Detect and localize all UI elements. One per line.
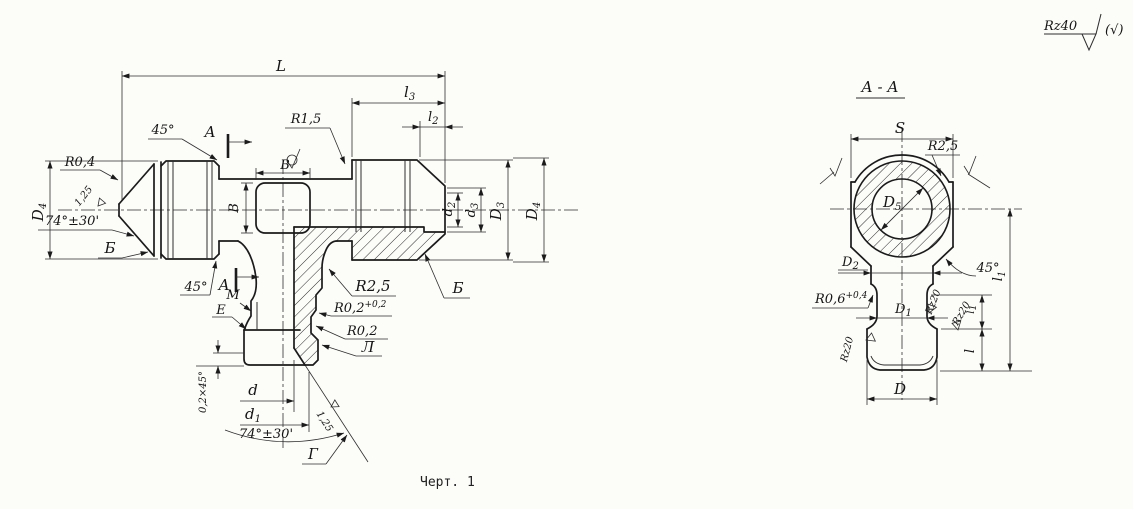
roughness-flag-icon — [95, 198, 106, 209]
label-dim-D5: D5 — [882, 193, 901, 213]
label-dim-D: D — [893, 380, 906, 398]
chamfer-45-bottom-note: 45° — [180, 261, 216, 295]
section-view: А - А D5 S — [812, 78, 1032, 405]
radius-small-note: R0,2 — [316, 324, 388, 339]
label-dim-D3: D3 — [487, 202, 507, 221]
label-radius-tip: R0,4 — [64, 155, 95, 170]
label-dim-d1: d1 — [245, 405, 261, 425]
label-radius-neck: R0,6+0,4 — [814, 291, 868, 307]
label-surf-M: М — [225, 288, 240, 303]
label-surf-B-left: Б — [103, 239, 115, 257]
radius-groove-note: R0,2+0,2 — [319, 300, 392, 316]
surf-B-right-note: Б — [425, 254, 470, 298]
label-dim-L: L — [275, 57, 286, 75]
label-radius-thread: R1,5 — [290, 112, 321, 127]
rough-thread-left-note: Rz20 — [839, 333, 876, 364]
radius-neck-note: R0,6+0,4 — [812, 291, 873, 308]
check-symbol-left — [820, 158, 842, 184]
label-dim-l2: l2 — [428, 110, 439, 127]
roughness-symbol-icon — [1082, 34, 1096, 50]
label-dim-D1: D1 — [894, 302, 912, 319]
radius-branch-note: R2,5 — [329, 269, 396, 296]
label-radius-branch: R2,5 — [354, 277, 390, 295]
surface-note: Rz40 (√) — [1043, 14, 1123, 50]
drawing-sheet: L l3 l2 D4 45° А — [0, 0, 1133, 509]
dim-B-width: В — [256, 158, 310, 180]
dim-B-height: В — [227, 183, 253, 233]
label-rough-bottom: 1,25 — [314, 409, 335, 434]
surface-note-rest: (√) — [1105, 23, 1123, 38]
label-dim-l: l — [963, 349, 978, 353]
label-cone-angle-bottom: 74°±30' — [239, 427, 293, 442]
figure-caption: Черт. 1 — [420, 475, 475, 490]
label-dim-d2: d2 — [441, 202, 458, 217]
section-mark-top: А — [203, 123, 252, 158]
label-surf-L: Л — [361, 338, 375, 356]
radius-thread-note: R1,5 — [285, 112, 345, 168]
label-chamfer: 45° — [975, 261, 999, 276]
label-dim-B-width: В — [279, 158, 290, 173]
label-chamfer-bottom: 45° — [183, 280, 207, 295]
surf-E-note: Е — [212, 303, 246, 329]
surf-L-note: Л — [322, 338, 382, 356]
label-dim-l3: l3 — [404, 83, 415, 103]
label-dim-l1-inner: l1 — [966, 304, 979, 314]
label-dim-D4-right: D4 — [523, 202, 543, 221]
rough-thread-right-note: Rz20 — [950, 299, 973, 331]
rough-bottom-note: 1,25 — [314, 400, 339, 434]
rough-left-note: 1,25 — [73, 184, 106, 208]
roughness-flag-icon — [864, 333, 875, 345]
label-chamfer-port: 0,2×45° — [198, 371, 209, 413]
check-symbol-right — [964, 156, 990, 188]
label-dim-S: S — [895, 119, 905, 137]
dim-l2: l2 — [402, 110, 463, 157]
technical-drawing: L l3 l2 D4 45° А — [0, 0, 1133, 509]
label-dim-D2: D2 — [841, 255, 859, 272]
surf-G-note: Г — [302, 435, 347, 464]
chamfer-port-note: 0,2×45° — [196, 340, 244, 413]
roughness-flag-icon — [329, 400, 339, 410]
chamfer-note: 45° — [946, 259, 1000, 276]
label-dim-B-height: В — [227, 203, 242, 214]
dim-l: l — [963, 329, 982, 371]
label-chamfer-top: 45° — [150, 123, 174, 138]
label-surf-G: Г — [307, 445, 319, 463]
label-surf-B-right: Б — [451, 279, 463, 297]
label-radius-groove: R0,2+0,2 — [333, 300, 387, 316]
label-rough-thread-left: Rz20 — [839, 335, 857, 364]
main-view: L l3 l2 D4 45° А — [29, 57, 580, 464]
label-radius-top: R2,5 — [927, 139, 958, 154]
section-title: А - А — [860, 78, 898, 96]
surface-note-value: Rz40 — [1043, 19, 1077, 34]
label-rough-left: 1,25 — [73, 184, 95, 208]
label-surf-E: Е — [215, 303, 226, 318]
label-section-A-top: А — [203, 123, 215, 141]
label-radius-small: R0,2 — [346, 324, 377, 339]
label-dim-d3: d3 — [464, 203, 481, 218]
label-cone-angle-left: 74°±30' — [45, 214, 99, 229]
label-dim-d: d — [248, 381, 258, 399]
surf-M-note: М — [225, 288, 251, 311]
radius-tip-note: R0,4 — [60, 155, 118, 180]
